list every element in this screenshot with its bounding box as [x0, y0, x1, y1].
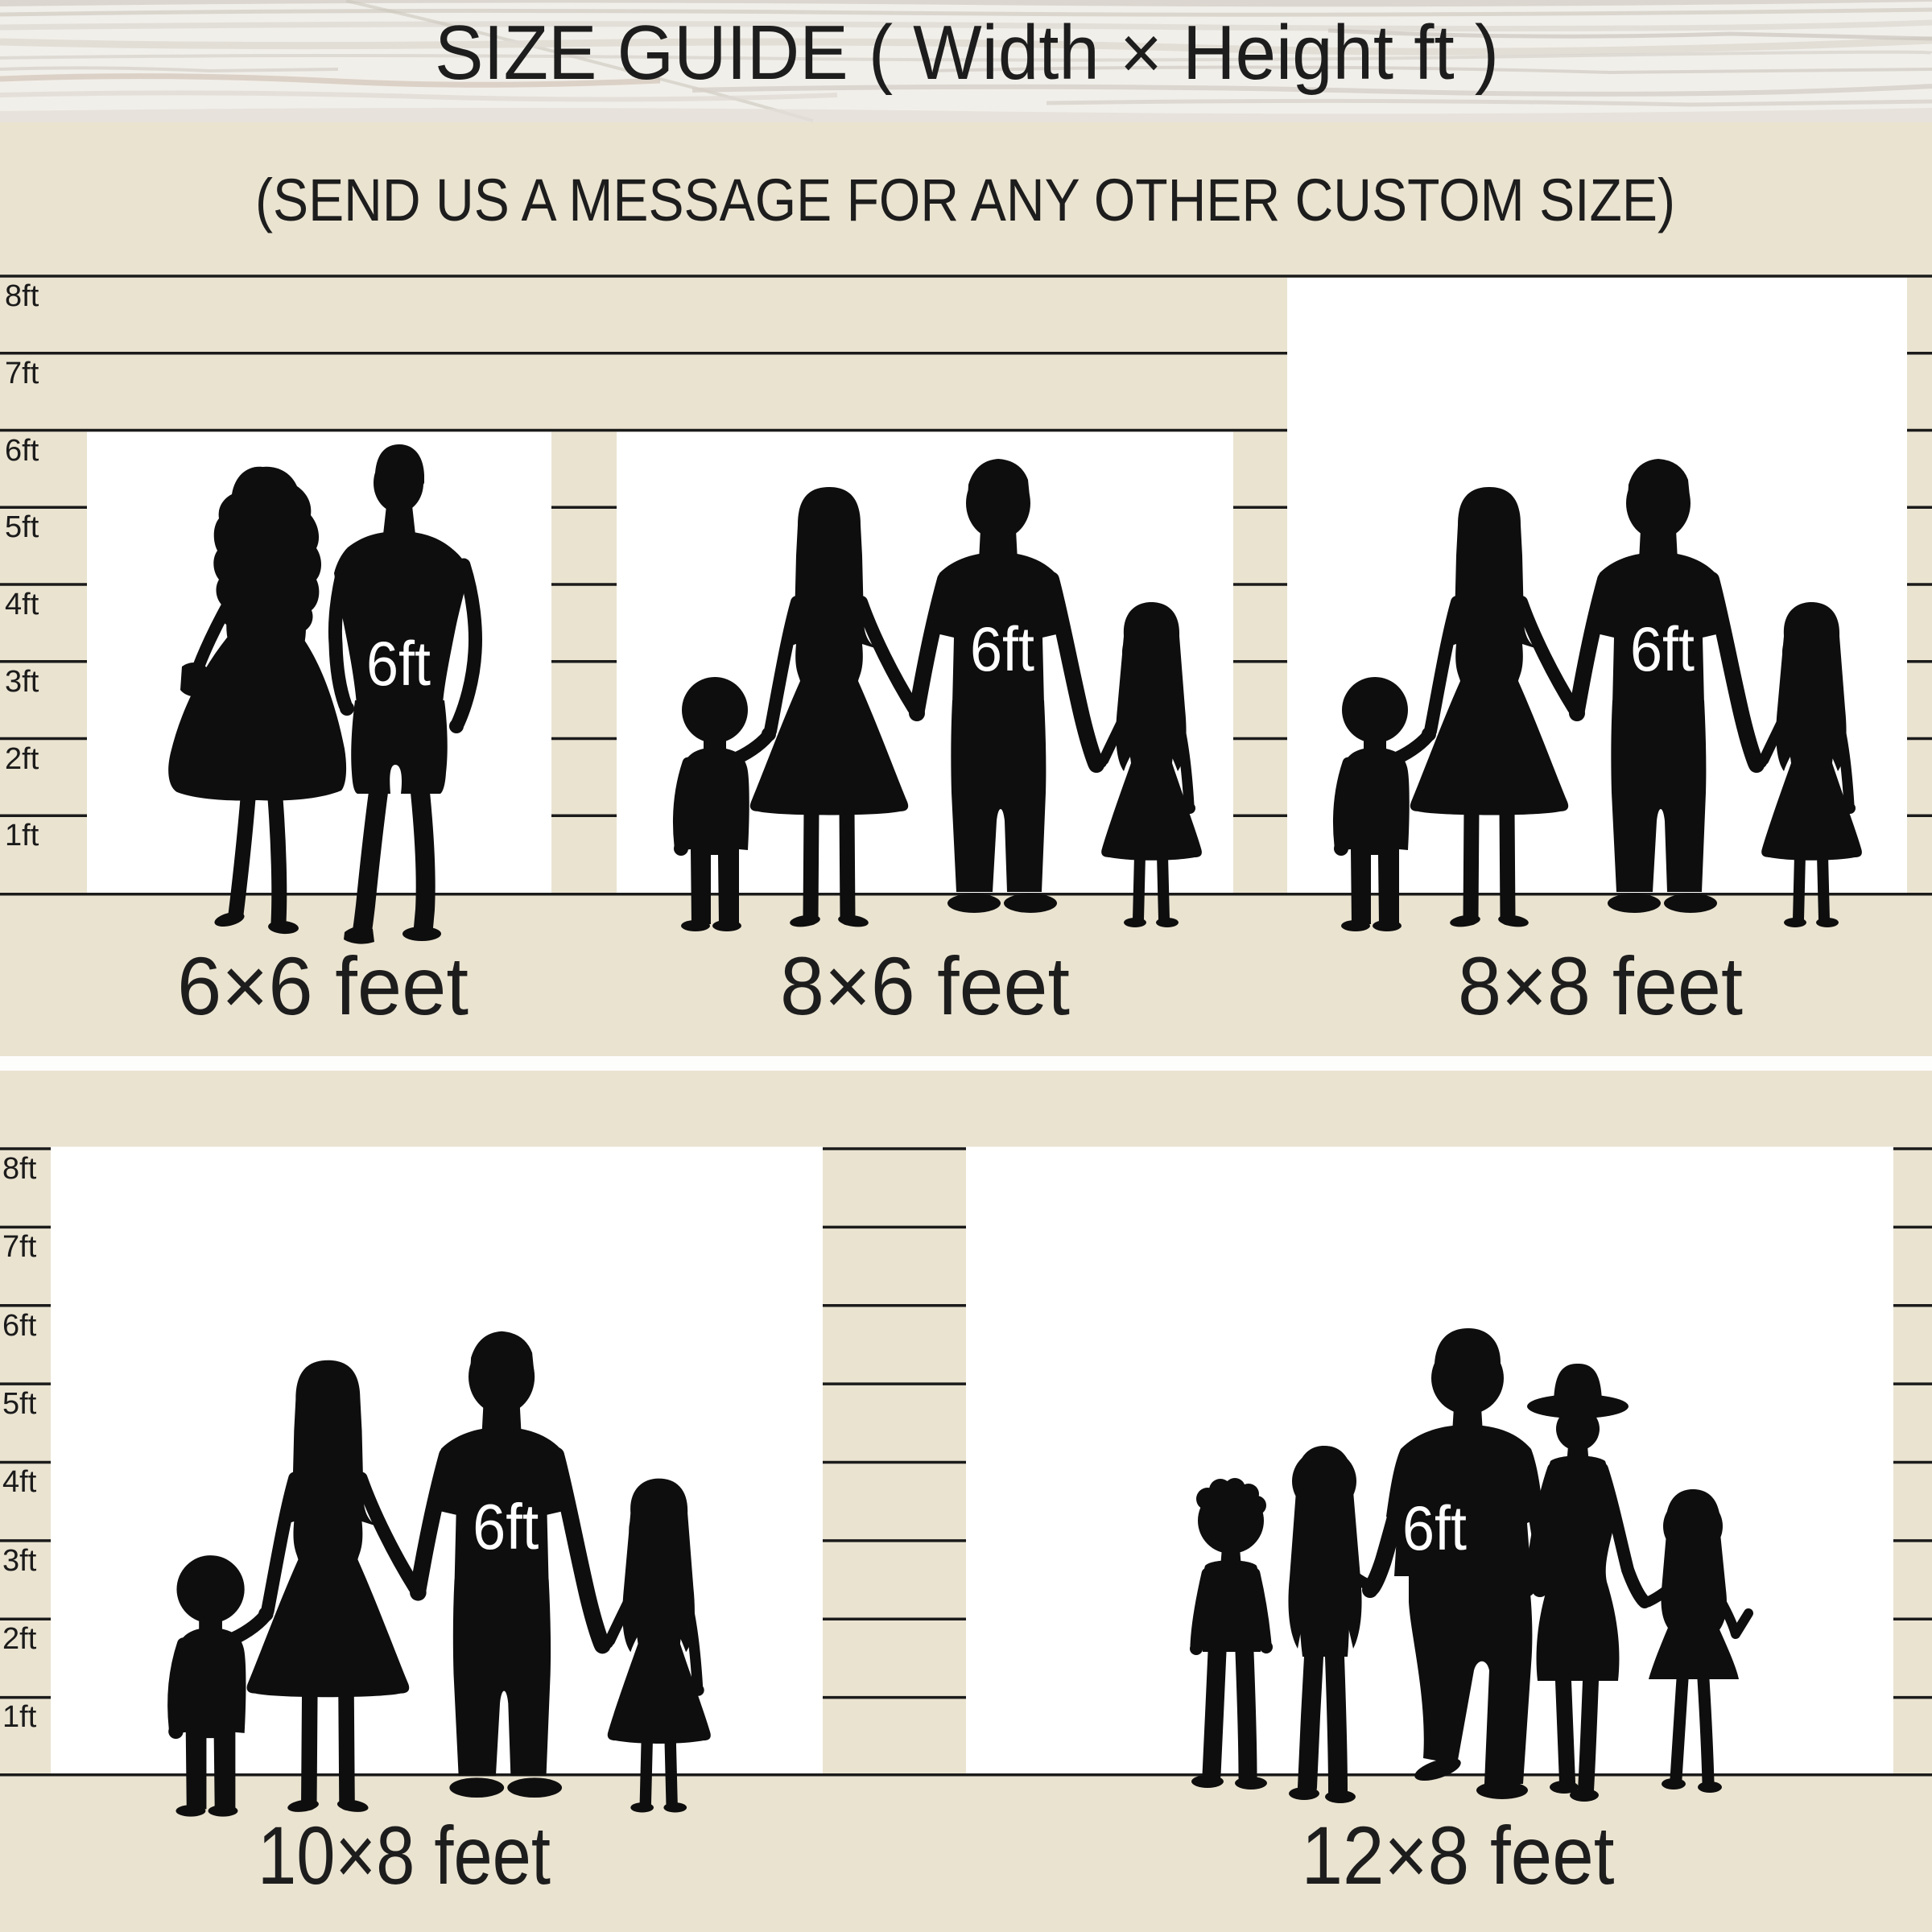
- svg-text:7ft: 7ft: [2, 1230, 37, 1264]
- svg-text:2ft: 2ft: [2, 1622, 37, 1656]
- svg-text:5ft: 5ft: [2, 1387, 37, 1421]
- svg-text:6ft: 6ft: [5, 434, 39, 468]
- svg-text:10×8 feet: 10×8 feet: [258, 1810, 551, 1901]
- svg-text:7ft: 7ft: [5, 357, 39, 390]
- svg-text:6ft: 6ft: [1402, 1492, 1467, 1563]
- svg-text:6×6 feet: 6×6 feet: [177, 940, 469, 1032]
- svg-text:8×6 feet: 8×6 feet: [780, 940, 1070, 1032]
- svg-text:SIZE GUIDE ( Width × Height ft: SIZE GUIDE ( Width × Height ft ): [435, 10, 1499, 96]
- svg-text:2ft: 2ft: [5, 742, 39, 776]
- svg-text:8×8 feet: 8×8 feet: [1458, 940, 1743, 1032]
- svg-text:6ft: 6ft: [366, 628, 431, 699]
- svg-text:6ft: 6ft: [2, 1309, 37, 1343]
- svg-text:8ft: 8ft: [2, 1152, 37, 1186]
- svg-text:1ft: 1ft: [2, 1700, 37, 1734]
- svg-text:12×8 feet: 12×8 feet: [1302, 1810, 1615, 1901]
- svg-text:5ft: 5ft: [5, 510, 39, 544]
- svg-text:3ft: 3ft: [5, 665, 39, 699]
- svg-text:3ft: 3ft: [2, 1544, 37, 1578]
- svg-text:4ft: 4ft: [5, 588, 39, 621]
- svg-text:1ft: 1ft: [5, 819, 39, 852]
- svg-text:4ft: 4ft: [2, 1465, 37, 1499]
- svg-text:(SEND US A MESSAGE FOR ANY OTH: (SEND US A MESSAGE FOR ANY OTHER CUSTOM …: [255, 167, 1675, 233]
- svg-text:8ft: 8ft: [5, 279, 39, 313]
